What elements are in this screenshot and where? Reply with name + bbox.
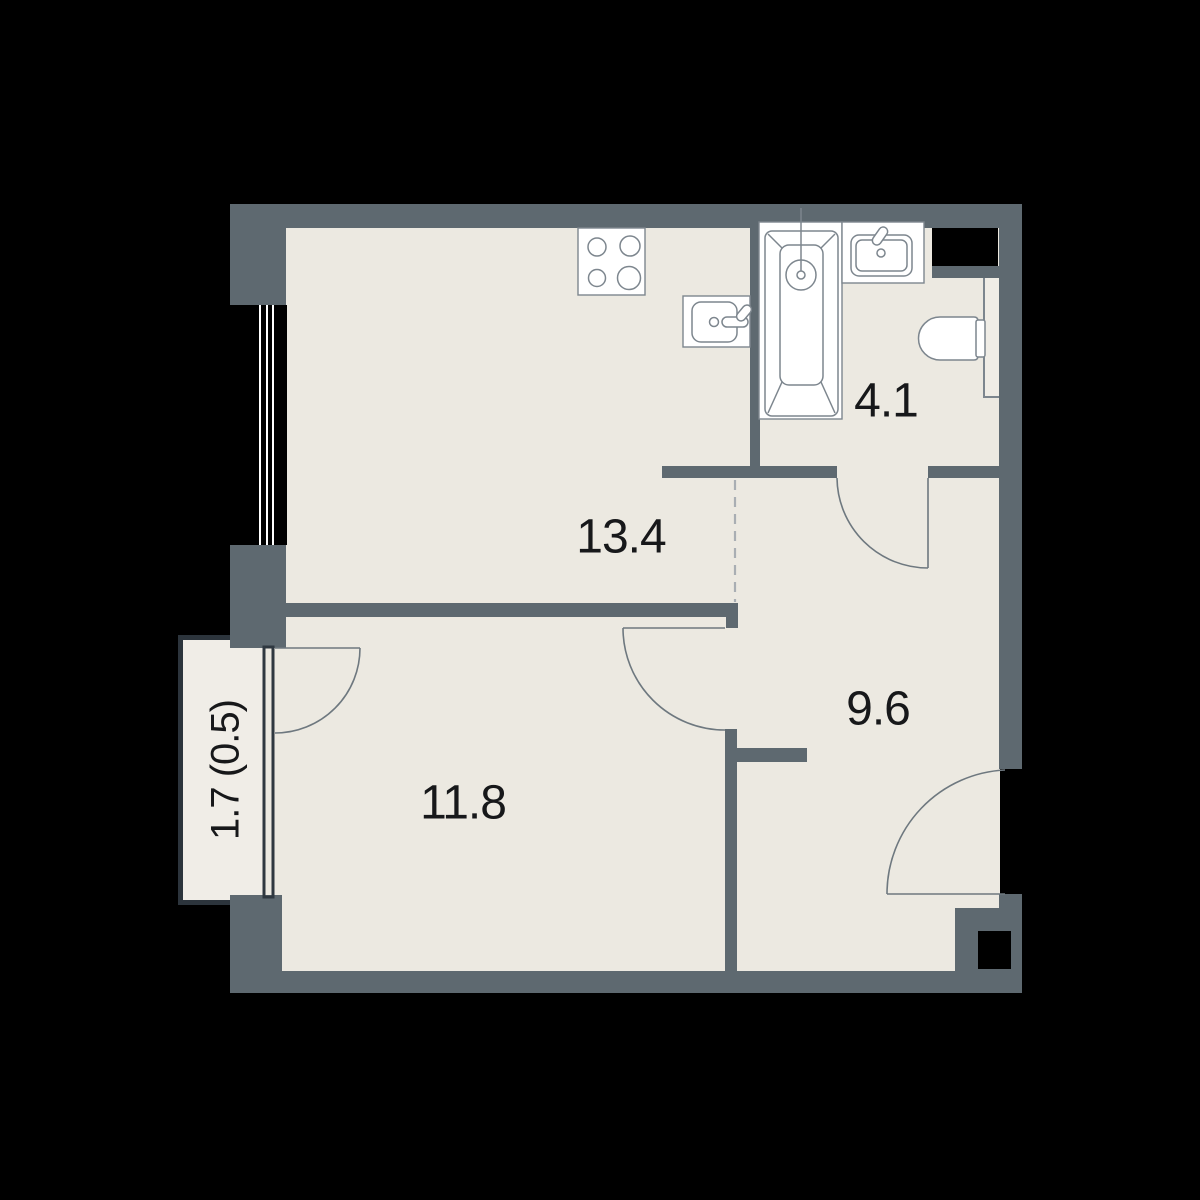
room-label-hallway: 9.6: [846, 682, 910, 737]
wall-hall-stub: [737, 748, 807, 762]
wall-kitchen-bathroom: [750, 228, 760, 466]
wall-left-pier-bottom: [230, 895, 282, 971]
wall-bedroom-hall: [725, 729, 737, 971]
wall-left-pier-middle: [230, 545, 286, 648]
duct-shaft-icon: [932, 228, 998, 266]
wall-under-shaft: [932, 266, 999, 278]
wall-top: [230, 204, 1022, 228]
apartment-floor: [232, 228, 1000, 971]
duct-shaft-corner-icon: [978, 931, 1011, 969]
room-label-bedroom: 11.8: [420, 776, 506, 831]
wall-bathroom-bottom-right: [928, 466, 1000, 478]
room-label-kitchen-living: 13.4: [576, 510, 665, 565]
wall-bedroom-top: [286, 603, 738, 617]
room-label-bathroom: 4.1: [854, 374, 918, 429]
wall-bottom: [230, 971, 1022, 993]
wall-left-pier-top: [230, 204, 286, 305]
wall-bedroom-top-cap: [726, 617, 738, 628]
room-label-balcony: 1.7 (0.5): [204, 700, 249, 840]
wall-niche: [983, 278, 999, 398]
wall-bathroom-bottom-left: [662, 466, 837, 478]
floor-plan: 13.4 4.1 9.6 11.8 1.7 (0.5): [0, 0, 1200, 1200]
wall-right-upper: [999, 204, 1022, 769]
